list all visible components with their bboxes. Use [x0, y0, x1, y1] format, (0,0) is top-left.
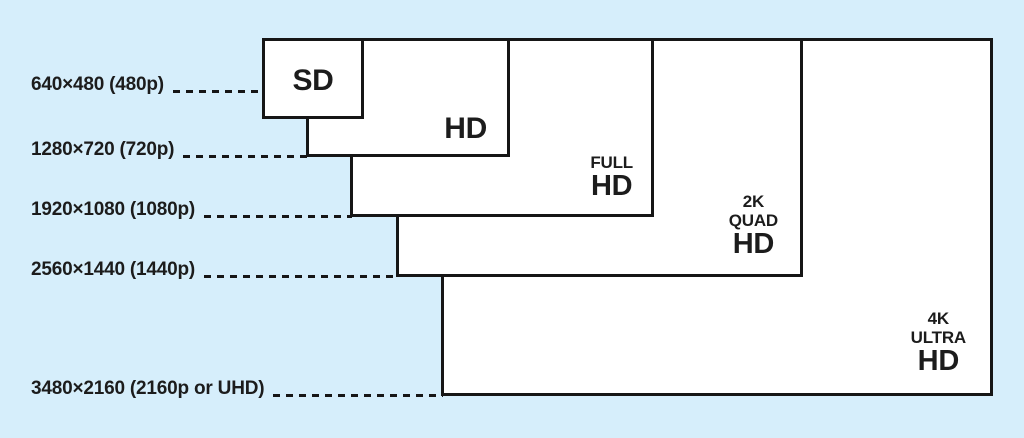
dashed-connector-480p — [173, 90, 264, 93]
resolution-label-1440p: 2560×1440 (1440p) — [31, 257, 195, 283]
box-sd: SD — [262, 38, 364, 119]
resolution-label-1080p: 1920×1080 (1080p) — [31, 197, 195, 223]
box-label-line: 4K — [911, 309, 966, 328]
label-row-480p: 640×480 (480p) — [31, 72, 264, 98]
resolution-label-720p: 1280×720 (720p) — [31, 137, 174, 163]
box-label-full-hd: FULL HD — [590, 153, 633, 200]
box-label-line: HD — [729, 230, 778, 258]
label-row-1440p: 2560×1440 (1440p) — [31, 257, 398, 283]
box-label-line: HD — [911, 347, 966, 375]
box-label-line: 2K — [729, 192, 778, 211]
resolution-comparison-diagram: 4K ULTRA HD 2K QUAD HD FULL HD HD SD 640… — [0, 0, 1024, 438]
label-row-720p: 1280×720 (720p) — [31, 137, 308, 163]
dashed-connector-2160p — [273, 394, 443, 397]
box-label-sd: SD — [292, 66, 333, 96]
dashed-connector-1080p — [204, 215, 352, 218]
box-label-4k-ultra-hd: 4K ULTRA HD — [911, 309, 966, 375]
dashed-connector-1440p — [204, 275, 398, 278]
resolution-label-2160p: 3480×2160 (2160p or UHD) — [31, 376, 264, 402]
label-row-1080p: 1920×1080 (1080p) — [31, 197, 352, 223]
resolution-label-480p: 640×480 (480p) — [31, 72, 164, 98]
dashed-connector-720p — [183, 155, 308, 158]
label-row-2160p: 3480×2160 (2160p or UHD) — [31, 376, 443, 402]
box-label-hd: HD — [444, 114, 487, 144]
box-label-2k-quad-hd: 2K QUAD HD — [729, 192, 778, 258]
box-label-line: HD — [590, 172, 633, 200]
